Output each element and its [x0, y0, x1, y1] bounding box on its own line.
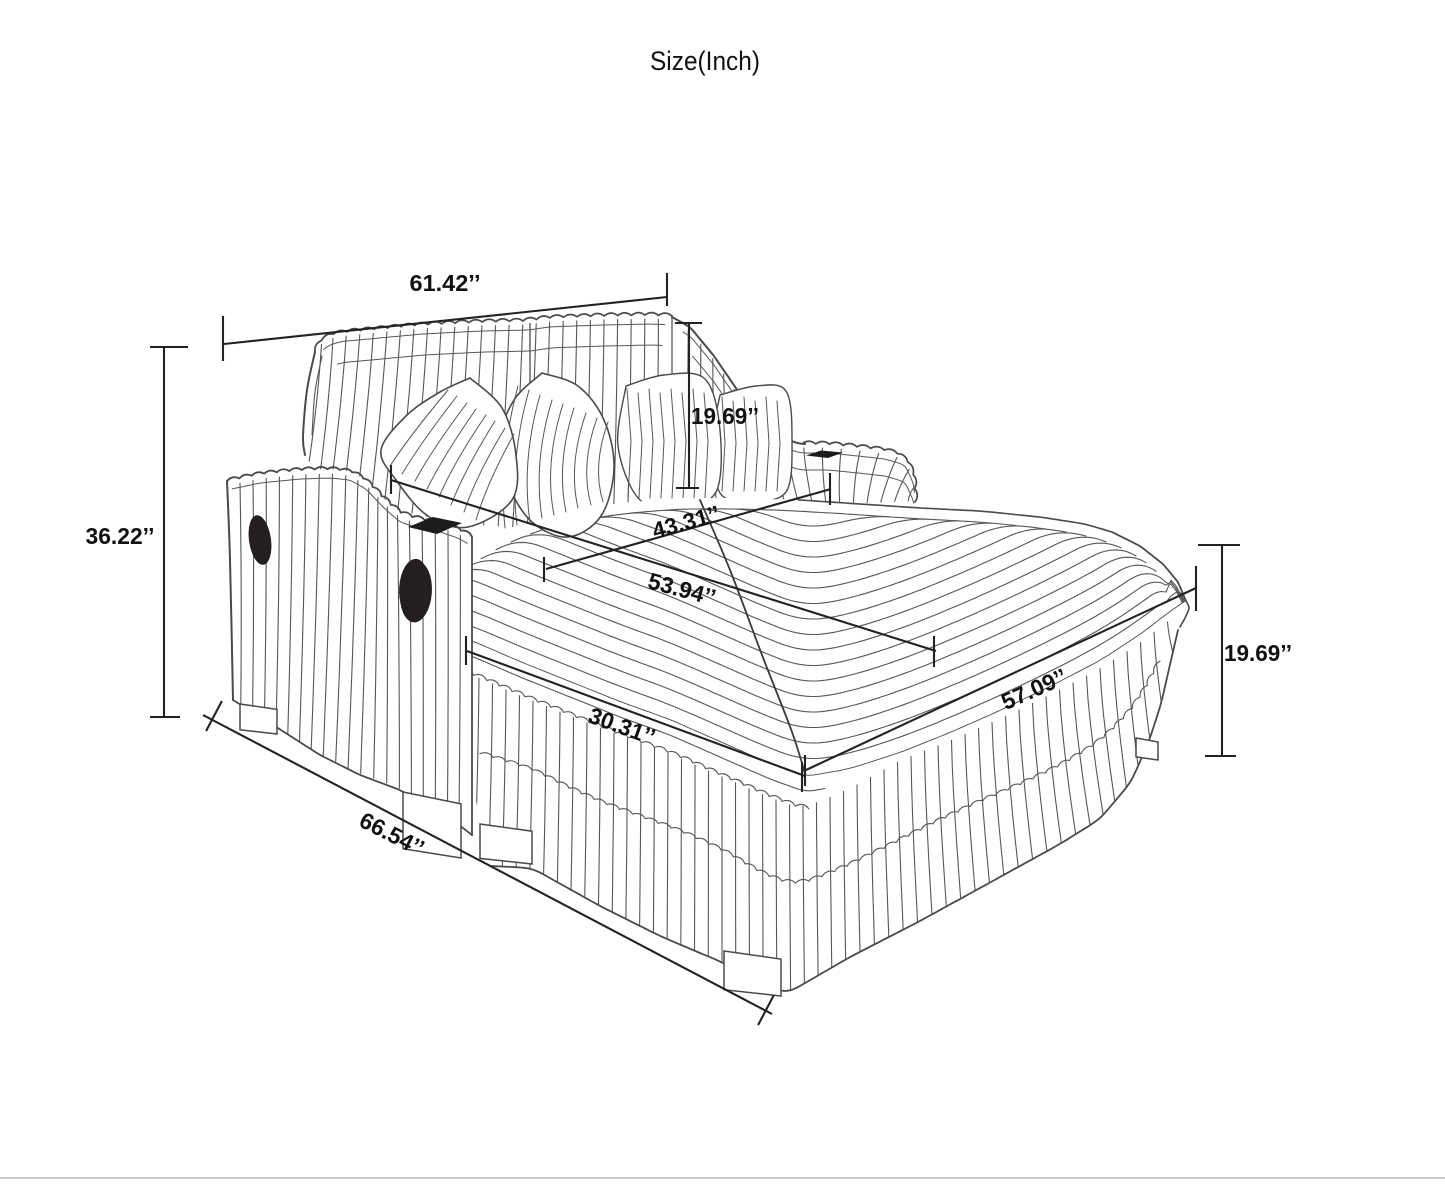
svg-text:61.42’’: 61.42’’ [410, 270, 481, 296]
svg-text:Size(Inch): Size(Inch) [650, 46, 760, 76]
svg-text:19.69’’: 19.69’’ [1224, 640, 1292, 666]
svg-text:36.22’’: 36.22’’ [86, 523, 155, 549]
svg-text:19.69’’: 19.69’’ [691, 403, 759, 429]
